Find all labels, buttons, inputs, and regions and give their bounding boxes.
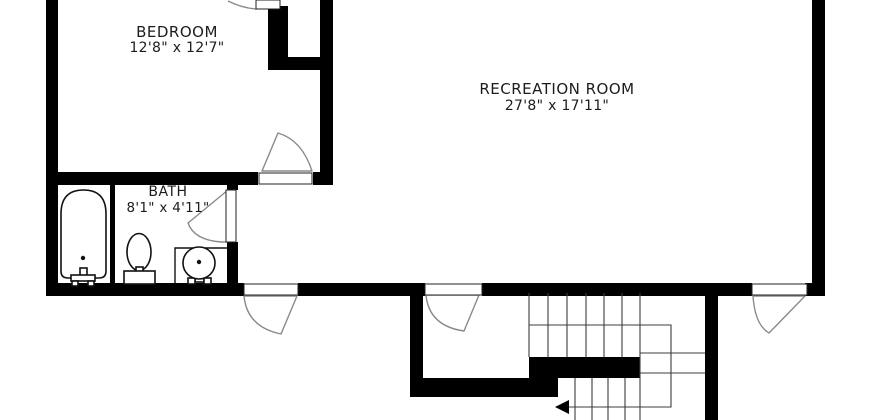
wall-segment [812, 0, 825, 296]
door-swing-icon [228, 1, 256, 9]
bedroom-dimensions: 12'8" x 12'7" [129, 40, 224, 56]
wall-segment [268, 57, 333, 70]
door-leaf [244, 284, 298, 295]
wall-segment [227, 242, 238, 296]
bathtub-icon [61, 190, 106, 286]
stair-treads-lower [575, 378, 625, 420]
door-leaf [752, 284, 807, 295]
wall-segment [298, 283, 425, 296]
wall-segment [529, 357, 640, 378]
stair-treads-winder [640, 353, 705, 373]
wall-segment-thin [110, 177, 115, 283]
door-swing-icon [244, 296, 297, 334]
door-leaf [256, 0, 280, 9]
bath-label: BATH [148, 184, 187, 200]
bedroom-label: BEDROOM [136, 23, 218, 41]
toilet-icon [124, 234, 155, 285]
recreation-room-label: RECREATION ROOM [479, 80, 634, 98]
stair-direction-arrow-icon [555, 400, 569, 414]
door-leaf [259, 173, 312, 184]
recreation-room-dimensions: 27'8" x 17'11" [505, 98, 609, 114]
wall-segment [46, 0, 58, 296]
door-swing-icon [188, 190, 228, 242]
door-swing-icon [753, 296, 805, 333]
door-swing-icon [262, 133, 312, 171]
wall-segment [705, 293, 718, 420]
room-labels: BEDROOM 12'8" x 12'7" BATH 8'1" x 4'11" … [127, 23, 635, 216]
floor-plan: BEDROOM 12'8" x 12'7" BATH 8'1" x 4'11" … [0, 0, 870, 420]
door-leaf [425, 284, 482, 295]
pedestal-sink-icon [175, 247, 227, 284]
wall-segment [320, 0, 333, 185]
stairs-icon [529, 293, 705, 420]
door-swing-icon [426, 295, 479, 331]
door-leaf [226, 190, 236, 242]
bath-dimensions: 8'1" x 4'11" [127, 200, 210, 216]
floor-plan-canvas: BEDROOM 12'8" x 12'7" BATH 8'1" x 4'11" … [0, 0, 870, 420]
wall-segment [227, 172, 238, 190]
wall-segment [410, 378, 558, 397]
